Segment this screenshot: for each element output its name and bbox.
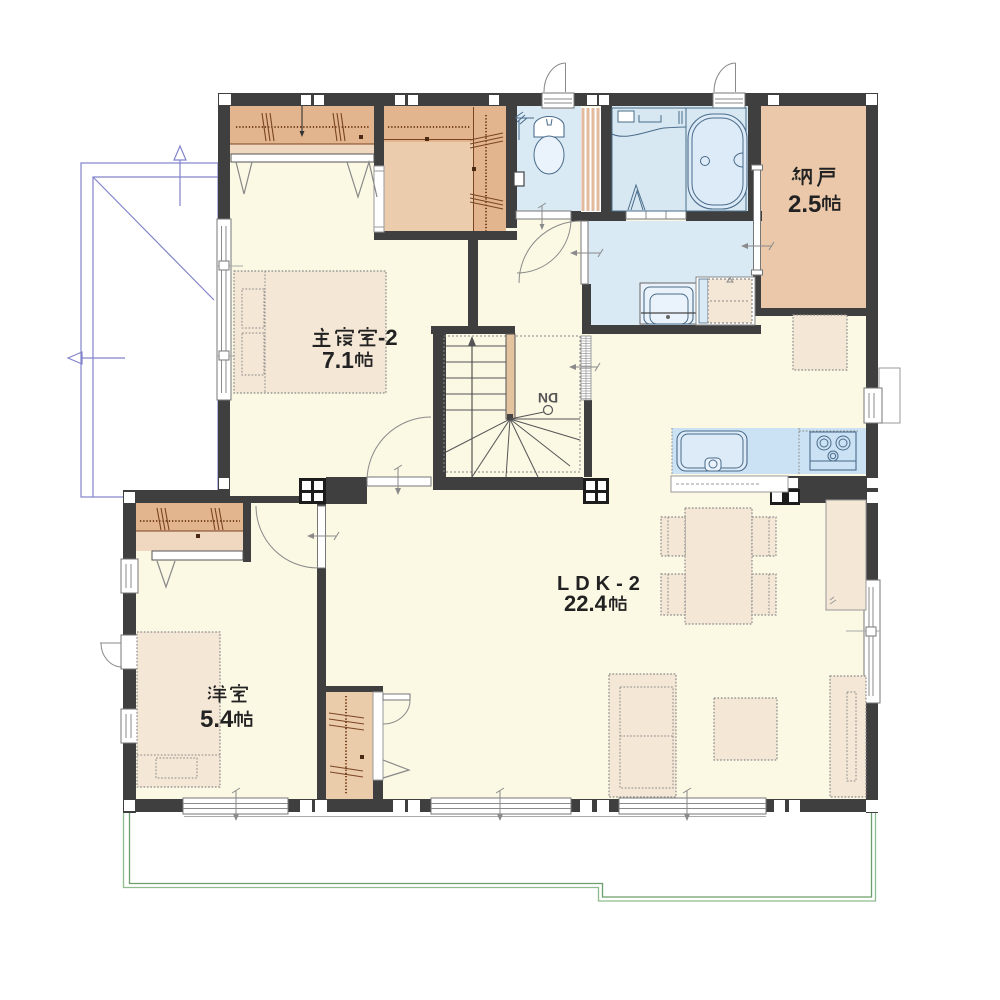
svg-text:7.1: 7.1 bbox=[322, 347, 354, 373]
svg-text:-2: -2 bbox=[378, 325, 398, 350]
svg-text:22.4: 22.4 bbox=[564, 591, 608, 616]
svg-text:2.5: 2.5 bbox=[788, 191, 821, 218]
svg-text:DN: DN bbox=[538, 390, 558, 406]
svg-text:5.4: 5.4 bbox=[200, 706, 234, 733]
